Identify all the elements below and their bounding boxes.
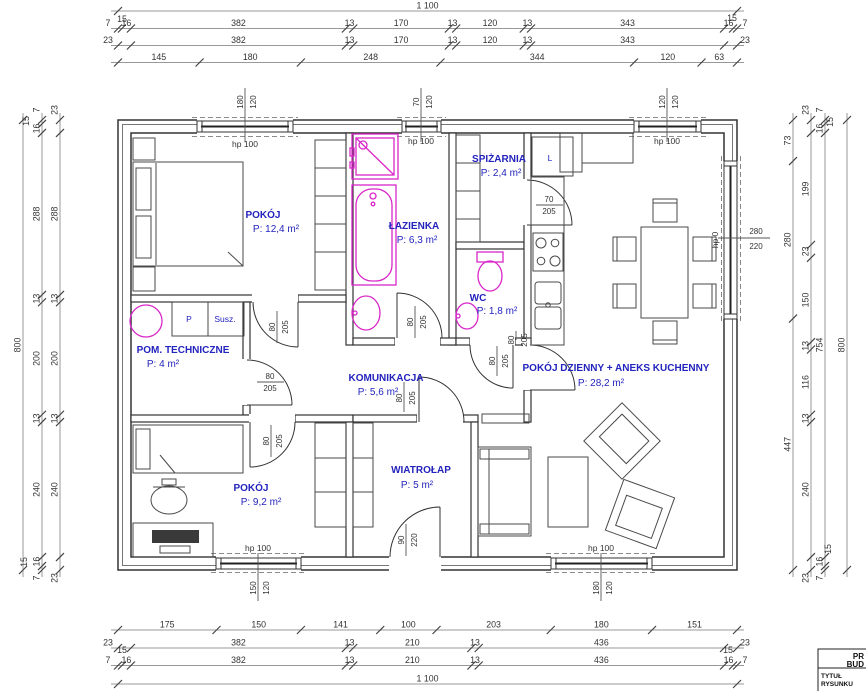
- door-size: 80: [395, 393, 404, 402]
- door-size: 70: [545, 195, 554, 204]
- dim-label: 344: [530, 52, 545, 62]
- dim-label: 175: [160, 620, 175, 630]
- bedroom1-furniture: [133, 138, 346, 291]
- dim-label: 7: [106, 655, 111, 665]
- dim-label: 23: [103, 35, 113, 45]
- dim-label: 150: [251, 620, 266, 630]
- dim-label: 7: [32, 575, 42, 580]
- dim-label: 13: [32, 413, 42, 423]
- dim-label: 7: [815, 575, 825, 580]
- window-size: 120: [262, 581, 271, 595]
- door-size: 205: [281, 320, 290, 334]
- dim-label: 200: [32, 351, 42, 366]
- window-sill: hp 100: [654, 136, 680, 146]
- room-name: POKÓJ: [245, 208, 280, 221]
- dim-label: 16: [724, 655, 734, 665]
- dim-label: 13: [522, 18, 532, 28]
- dim-label: 436: [594, 655, 609, 665]
- dim-label: 16: [122, 655, 132, 665]
- dim-label: 15: [117, 14, 127, 24]
- dim-label: 16: [815, 557, 825, 567]
- dim-label: 13: [448, 18, 458, 28]
- dim-label: 280: [783, 232, 793, 247]
- door-size: 220: [410, 533, 419, 547]
- room-name: POKÓJ: [233, 481, 268, 494]
- dim-label: 288: [32, 206, 42, 221]
- room-name: POKÓJ DZIENNY + ANEKS KUCHENNY: [523, 361, 710, 374]
- dim-label: 13: [448, 35, 458, 45]
- window-sill: hp 0: [710, 231, 720, 248]
- dining-set: [613, 199, 716, 344]
- dim-label: 170: [394, 18, 409, 28]
- dim-label: 1 100: [416, 1, 438, 11]
- dim-label: 13: [32, 294, 42, 304]
- dim-label: 288: [50, 206, 60, 221]
- dim-label: 23: [801, 246, 811, 256]
- room-area: P: 28,2 m²: [578, 378, 625, 389]
- dim-label: 210: [405, 655, 420, 665]
- door-size: 80: [268, 322, 277, 331]
- window-size: 120: [605, 581, 614, 595]
- room-area: P: 5 m²: [401, 480, 434, 491]
- room-name: POM. TECHNICZNE: [137, 345, 230, 356]
- dim-label: 180: [594, 620, 609, 630]
- door-size: 205: [263, 384, 277, 393]
- door-size: 205: [408, 391, 417, 405]
- dim-label: 170: [394, 35, 409, 45]
- dim-label: 199: [801, 181, 811, 196]
- door-size: 80: [488, 356, 497, 365]
- dim-label: 7: [32, 107, 42, 112]
- dim-label: 16: [815, 123, 825, 133]
- dim-label: 754: [815, 338, 825, 353]
- room-area: P: 12,4 m²: [253, 224, 300, 235]
- dryer-label: Susz.: [214, 314, 235, 324]
- dim-label: 210: [405, 638, 420, 648]
- room-name: WIATROŁAP: [391, 465, 451, 476]
- dim-label: 382: [231, 638, 246, 648]
- dim-label: 248: [363, 52, 378, 62]
- dim-label: 23: [103, 638, 113, 648]
- window-size: 120: [249, 95, 258, 109]
- title-block-label: RYSUNKU: [821, 681, 853, 688]
- window-sill: hp 100: [408, 136, 434, 146]
- window-size: 150: [249, 581, 258, 595]
- dim-label: 116: [801, 375, 811, 389]
- dim-label: 7: [815, 107, 825, 112]
- door-size: 205: [520, 333, 529, 347]
- window-size: 180: [236, 95, 245, 109]
- door-size: 80: [266, 372, 275, 381]
- window-size: 180: [592, 581, 601, 595]
- dim-label: 15: [723, 645, 733, 655]
- dim-label: 120: [483, 35, 498, 45]
- dim-label: 23: [740, 35, 750, 45]
- window-sill: hp 100: [245, 543, 271, 553]
- dim-label: 73: [783, 136, 793, 146]
- dim-label: 16: [32, 123, 42, 133]
- dim-label: 13: [470, 655, 480, 665]
- dim-label: 13: [345, 638, 355, 648]
- dim-label: 7: [743, 655, 748, 665]
- door-size: 80: [507, 335, 516, 344]
- dim-label: 240: [50, 482, 60, 497]
- dim-label: 1 100: [416, 674, 438, 684]
- dim-label: 23: [801, 573, 811, 583]
- dim-label: 436: [594, 638, 609, 648]
- room-area: P: 1,8 m²: [477, 306, 518, 317]
- dim-label: 382: [231, 18, 246, 28]
- dim-label: 145: [151, 52, 166, 62]
- dim-label: 382: [231, 655, 246, 665]
- dim-label: 240: [32, 482, 42, 497]
- dim-label: 150: [801, 293, 811, 308]
- floor-plan-page: POKÓJ P: 12,4 m² ŁAZIENKA P: 6,3 m² SPIŻ…: [0, 0, 866, 691]
- door-size: 205: [501, 354, 510, 368]
- dim-label: 13: [50, 413, 60, 423]
- dim-label: 15: [117, 645, 127, 655]
- door-size: 80: [406, 317, 415, 326]
- window-sill: hp 100: [232, 139, 258, 149]
- door-size: 205: [542, 207, 556, 216]
- dim-label: 13: [345, 655, 355, 665]
- dim-label: 13: [470, 638, 480, 648]
- room-area: P: 4 m²: [147, 359, 180, 370]
- dim-label: 15: [825, 117, 835, 127]
- window-size: 120: [671, 95, 680, 109]
- dim-label: 23: [740, 638, 750, 648]
- dim-label: 203: [486, 620, 501, 630]
- dim-label: 23: [50, 573, 60, 583]
- dim-label: 200: [50, 351, 60, 366]
- dim-label: 800: [13, 338, 23, 353]
- room-labels: POKÓJ P: 12,4 m² ŁAZIENKA P: 6,3 m² SPIŻ…: [137, 152, 710, 508]
- dim-label: 15: [727, 13, 737, 23]
- living-furniture: [478, 403, 675, 549]
- dim-label: 13: [345, 35, 355, 45]
- dim-label: 100: [401, 620, 416, 630]
- room-area: P: 2,4 m²: [481, 168, 522, 179]
- dim-label: 23: [50, 105, 60, 115]
- floor-plan-drawing: POKÓJ P: 12,4 m² ŁAZIENKA P: 6,3 m² SPIŻ…: [0, 0, 866, 691]
- dim-label: 343: [620, 35, 635, 45]
- room-name: KOMUNIKACJA: [349, 373, 424, 384]
- dim-label: 240: [801, 482, 811, 497]
- dim-label: 151: [687, 620, 702, 630]
- window-size: 120: [425, 95, 434, 109]
- bathroom-fixtures: [350, 134, 398, 330]
- room-name: WC: [470, 293, 487, 304]
- dim-label: 800: [837, 338, 847, 353]
- wc-fixtures: [456, 252, 503, 329]
- dim-label: 13: [801, 341, 811, 351]
- room-name: SPIŻARNIA: [472, 152, 526, 165]
- room-area: P: 5,6 m²: [358, 387, 399, 398]
- dim-label: 7: [106, 18, 111, 28]
- door-size: 90: [397, 535, 406, 544]
- window-size: 220: [749, 242, 763, 251]
- pantry-shelves: [456, 135, 480, 242]
- window-sill: hp 100: [588, 543, 614, 553]
- dim-label: 382: [231, 35, 246, 45]
- dim-label: 120: [483, 18, 498, 28]
- washer-label: P: [186, 314, 192, 324]
- window-size: 280: [749, 227, 763, 236]
- door-size: 205: [275, 434, 284, 448]
- title-block-project: BUD: [847, 660, 865, 669]
- dim-label: 15: [19, 557, 29, 567]
- door-size: 205: [419, 315, 428, 329]
- door-size: 80: [262, 436, 271, 445]
- dim-label: 141: [333, 620, 348, 630]
- dim-label: 23: [801, 105, 811, 115]
- title-block: PR BUD TYTUŁ RYSUNKU: [818, 649, 866, 691]
- room-name: ŁAZIENKA: [389, 221, 440, 232]
- window-size: 70: [412, 97, 421, 106]
- kitchen: [531, 133, 633, 345]
- dim-label: 180: [243, 52, 258, 62]
- title-block-label: TYTUŁ: [821, 673, 842, 680]
- dim-label: 15: [21, 116, 31, 126]
- dim-label: 447: [783, 437, 793, 452]
- dim-label: 15: [823, 544, 833, 554]
- dim-label: 7: [743, 18, 748, 28]
- dim-label: 13: [345, 18, 355, 28]
- dim-label: 16: [32, 557, 42, 567]
- room-area: P: 9,2 m²: [241, 497, 282, 508]
- fridge-label: L: [548, 153, 553, 163]
- dim-label: 120: [660, 52, 675, 62]
- window-size: 120: [658, 95, 667, 109]
- dim-label: 63: [714, 52, 724, 62]
- dim-label: 13: [522, 35, 532, 45]
- dim-label: 343: [620, 18, 635, 28]
- dim-label: 13: [801, 413, 811, 423]
- room-area: P: 6,3 m²: [397, 235, 438, 246]
- dim-label: 13: [50, 294, 60, 304]
